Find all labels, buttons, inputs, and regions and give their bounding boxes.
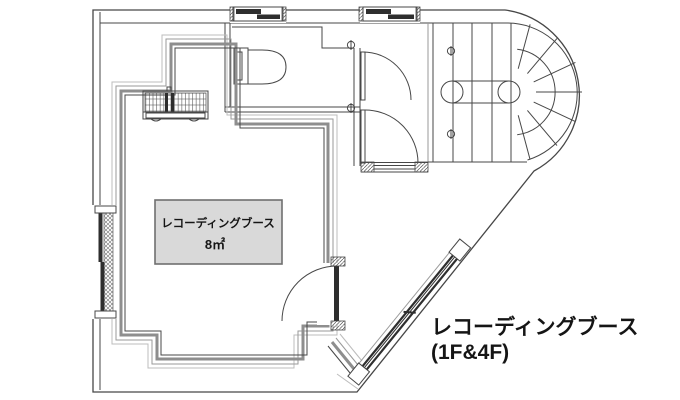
toilet-fixture <box>234 48 286 84</box>
floor-plan-page: レコーディングブース 8㎡ <box>0 0 680 400</box>
stair-fan-treads <box>517 24 582 159</box>
spiral-staircase <box>428 23 582 162</box>
left-window <box>92 205 118 319</box>
door-leaf <box>361 110 365 163</box>
hall-doors <box>361 52 428 172</box>
door-leaf <box>334 266 339 321</box>
door-swing-arc <box>365 110 418 163</box>
room-label-area: 8㎡ <box>205 237 225 252</box>
door-leaf <box>361 52 365 100</box>
floor-plan-drawing: レコーディングブース 8㎡ <box>0 0 680 400</box>
plan-caption: レコーディングブース (1F&4F) <box>431 315 638 364</box>
hall-sliding-door <box>361 162 428 172</box>
caption-line2: (1F&4F) <box>431 341 509 364</box>
toilet-room <box>225 23 360 166</box>
top-window-right <box>359 5 420 23</box>
top-window-left <box>230 5 286 23</box>
door-swing-arc <box>363 52 411 100</box>
room-label-box: レコーディングブース 8㎡ <box>155 200 282 264</box>
room-label-name: レコーディングブース <box>161 216 275 230</box>
booth-door <box>282 257 347 330</box>
caption-line1: レコーディングブース <box>431 315 638 339</box>
stair-column-symbols <box>447 46 454 139</box>
